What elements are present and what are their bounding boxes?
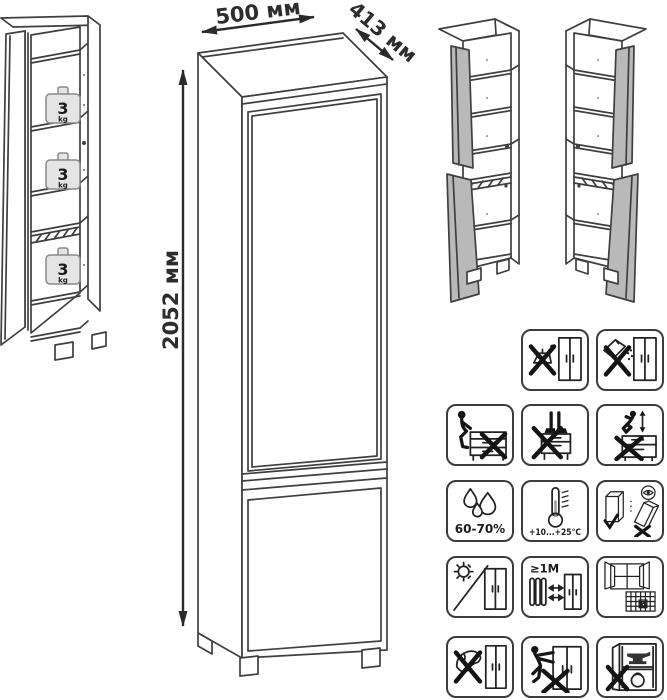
x-mark-icon	[456, 653, 480, 682]
weight-unit: kg	[58, 116, 68, 124]
care-icon-temperature-range: +10...+25°C	[521, 480, 589, 542]
double-arrow-icon	[549, 586, 562, 600]
radiator-icon	[530, 578, 546, 605]
svg-text:kg: kg	[58, 277, 68, 285]
sun-icon	[454, 562, 472, 580]
care-icon-no-aggressive-liquids	[521, 329, 589, 391]
anvil-icon	[627, 652, 650, 665]
open-cabinet-left-hinged	[425, 16, 537, 306]
wardrobe-icon	[634, 338, 656, 380]
lower-door	[248, 488, 381, 651]
x-mark-icon	[608, 667, 627, 689]
standing-feet-icon	[544, 413, 567, 433]
jumping-person-icon	[623, 410, 645, 432]
humidity-range-label: 60-70%	[455, 522, 505, 536]
tilted-cabinet-icon	[635, 499, 659, 528]
kettlebell-icon	[631, 673, 644, 686]
care-icon-no-direct-sunlight	[446, 556, 514, 618]
care-icon-no-standing	[521, 404, 589, 466]
left-open-cabinet-view: 3 kg 3 kg 3 kg	[0, 15, 132, 367]
x-mark-icon	[482, 434, 505, 457]
x-mark-icon	[606, 347, 629, 374]
upper-door	[248, 94, 381, 471]
care-icon-transport-upright	[596, 480, 664, 542]
care-icon-ventilate-room: 21	[596, 556, 664, 618]
wardrobe-icon	[565, 574, 581, 609]
calendar-icon: 21	[626, 592, 655, 611]
svg-text:kg: kg	[58, 182, 68, 190]
distance-label: ≥1M	[530, 562, 559, 576]
x-mark-icon	[617, 438, 642, 459]
instruction-sheet: 3 kg 3 kg 3 kg	[0, 0, 667, 700]
care-icon-no-sitting	[446, 404, 514, 466]
open-door	[1, 31, 25, 345]
water-drops-icon	[464, 489, 495, 517]
open-window-icon	[605, 562, 649, 589]
care-icon-heat-source-distance: ≥1M	[521, 556, 589, 618]
eye-icon	[642, 486, 655, 499]
temperature-range-label: +10...+25°C	[529, 528, 581, 537]
care-icon-humidity-range: 60-70%	[446, 480, 514, 542]
wardrobe-icon	[486, 646, 506, 688]
wardrobe-icon	[485, 569, 506, 609]
sitting-person-icon	[458, 411, 471, 448]
care-icon-no-overloading	[596, 636, 664, 698]
care-icon-no-harsh-cleaning	[446, 636, 514, 698]
thermometer-icon	[549, 488, 569, 527]
x-mark-icon	[636, 526, 649, 536]
height-dimension-label: 2052 мм	[159, 230, 183, 370]
care-icon-no-jumping	[596, 404, 664, 466]
wardrobe-icon	[559, 338, 581, 380]
calendar-day-label: 21	[639, 602, 647, 608]
care-icon-no-abrasive-powders	[596, 329, 664, 391]
open-cabinet-right-hinged	[548, 16, 660, 306]
main-cabinet-view	[140, 0, 435, 700]
care-icon-no-dragging	[521, 636, 589, 698]
